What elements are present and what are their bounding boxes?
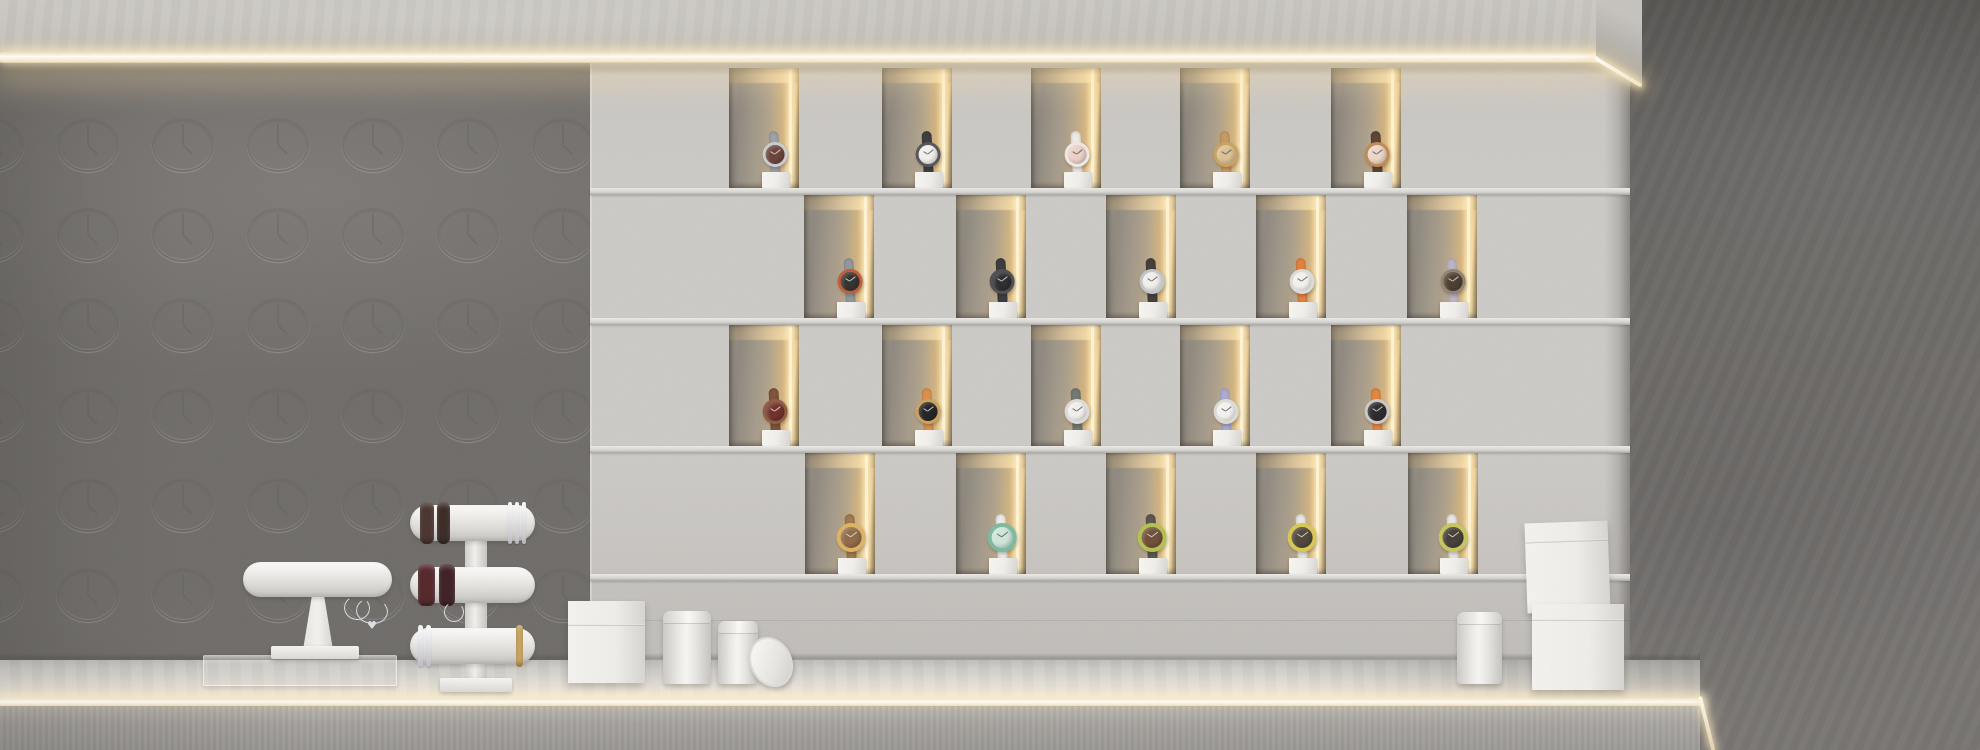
tbar-single-support [303,595,333,650]
bracelet-wire [515,502,519,544]
watch-store-scene: ♥ [0,0,1980,750]
bracelet-band [418,564,435,606]
gift-box-left [568,601,645,683]
canister-lid [1457,612,1502,625]
bracelet-band [420,502,434,544]
acrylic-tray [203,655,397,686]
canister-lid [718,621,758,634]
canister-center-1 [663,611,711,684]
prop-layer: ♥ [0,0,1980,750]
heart-charm: ♥ [367,620,377,631]
bracelet-wire [418,625,423,667]
box-lid-seam [568,624,645,626]
box-lid-seam [1532,619,1624,621]
bracelet-wire [426,625,431,667]
tbar-single-base [271,646,359,659]
canister-right [1457,612,1502,684]
bracelet-wire [508,502,512,544]
hanging-bracelet [443,601,466,624]
bracelet-band [516,625,523,667]
tbar-triple-base [440,678,512,692]
gift-box-stacked-2 [1532,604,1624,690]
box-lid-seam [1525,539,1608,544]
canister-lid [663,611,711,624]
gift-box-stacked-1 [1524,521,1610,614]
bracelet-wire [522,502,526,544]
bracelet-band [439,564,455,606]
bracelet-band [437,502,450,544]
tbar-single-bar [243,562,392,597]
